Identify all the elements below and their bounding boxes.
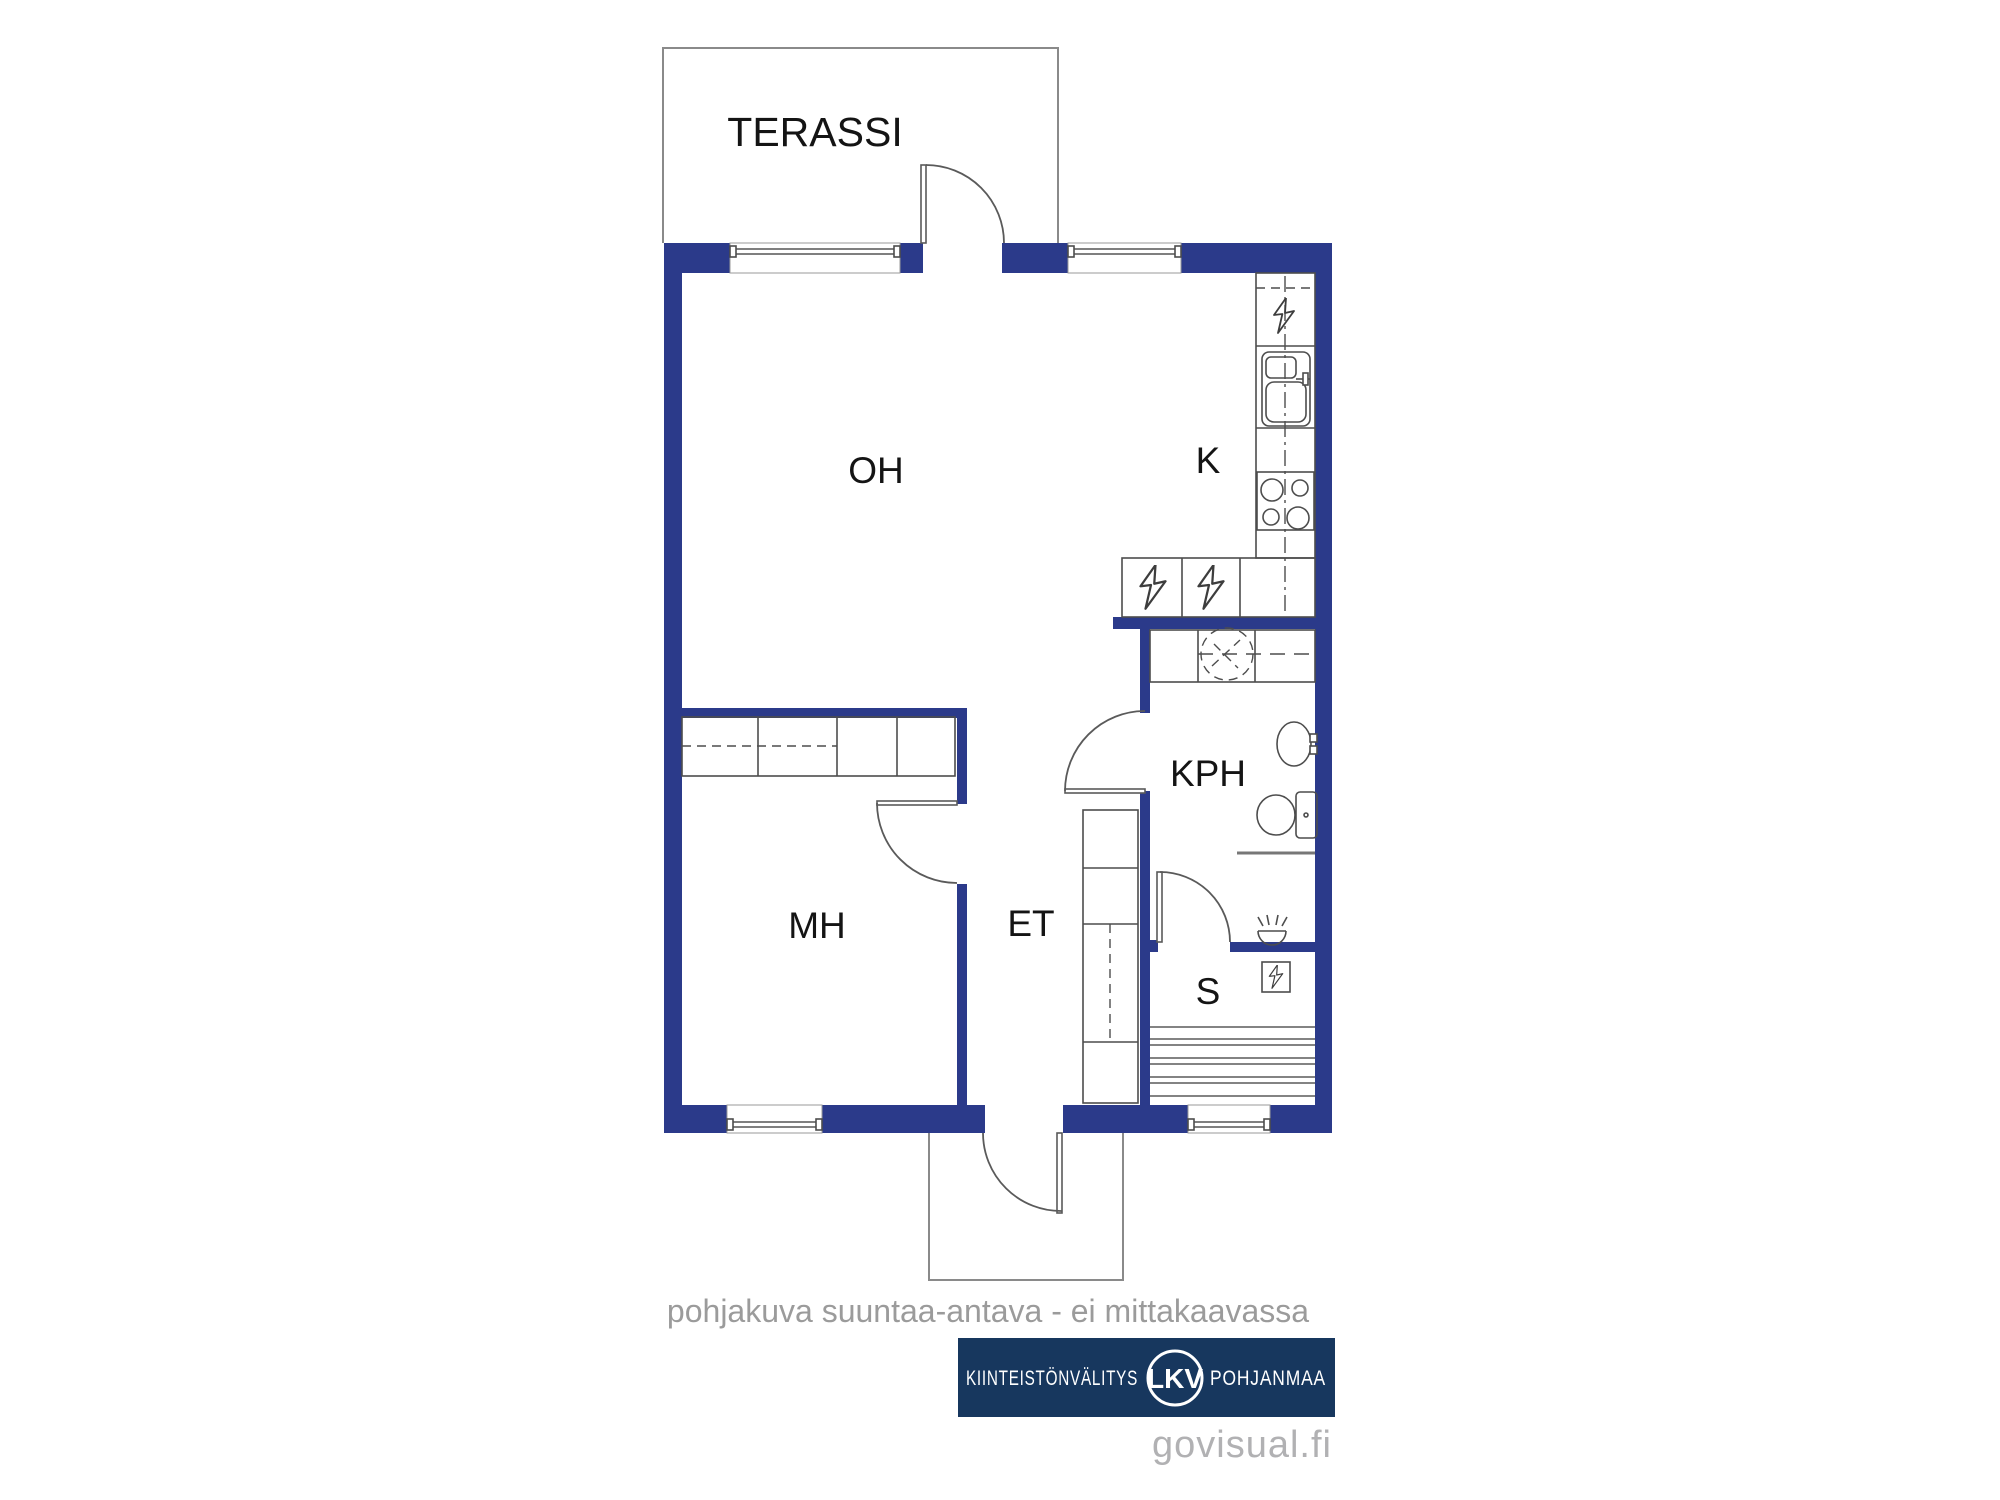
room-label-s: S bbox=[1196, 971, 1221, 1012]
agency-logo: KIINTEISTÖNVÄLITYS LKV POHJANMAA bbox=[958, 1338, 1335, 1417]
room-label-et: ET bbox=[1007, 903, 1054, 944]
toilet-icon bbox=[1257, 792, 1317, 838]
interior-walls bbox=[682, 617, 1315, 1105]
windows bbox=[727, 243, 1270, 1133]
sink-icon bbox=[1262, 352, 1310, 426]
sauna-heater-icon bbox=[1262, 962, 1290, 992]
sauna-fixtures bbox=[1150, 962, 1315, 1096]
shower-icon bbox=[1258, 915, 1287, 945]
kitchen-cabinets bbox=[1122, 558, 1315, 617]
lightning-icon bbox=[1141, 565, 1166, 609]
disclaimer-caption: pohjakuva suuntaa-antava - ei mittakaava… bbox=[667, 1293, 1309, 1329]
room-labels: OH K MH ET KPH S bbox=[788, 440, 1246, 1012]
room-label-kph: KPH bbox=[1170, 753, 1246, 794]
logo-badge: LKV bbox=[1147, 1363, 1203, 1394]
floorplan-page: TERASSI bbox=[0, 0, 2000, 1500]
room-label-mh: MH bbox=[788, 905, 846, 946]
exterior-walls bbox=[664, 243, 1332, 1133]
et-closet bbox=[1083, 810, 1138, 1103]
window-icon bbox=[1068, 243, 1181, 273]
lightning-icon bbox=[1274, 298, 1294, 333]
room-label-oh: OH bbox=[848, 450, 904, 491]
window-icon bbox=[730, 243, 900, 273]
washing-machine-icon bbox=[1150, 628, 1315, 682]
door-arc-icon bbox=[1065, 711, 1145, 793]
mh-closet bbox=[682, 717, 955, 776]
floorplan-canvas: TERASSI bbox=[0, 0, 2000, 1500]
door-arc-icon bbox=[1157, 872, 1230, 942]
door-arc-icon bbox=[921, 165, 1004, 243]
washbasin-icon bbox=[1277, 722, 1317, 766]
logo-text-left: KIINTEISTÖNVÄLITYS bbox=[966, 1367, 1138, 1390]
watermark-text: govisual.fi bbox=[1152, 1424, 1332, 1466]
lightning-icon bbox=[1269, 965, 1282, 988]
lightning-icon bbox=[1199, 565, 1224, 609]
doors bbox=[877, 165, 1230, 1213]
logo-text-right: POHJANMAA bbox=[1210, 1367, 1326, 1390]
sauna-bench-icon bbox=[1150, 1027, 1315, 1096]
room-label-terassi: TERASSI bbox=[727, 109, 902, 155]
room-label-k: K bbox=[1196, 440, 1221, 481]
entrance-stoop bbox=[929, 1133, 1123, 1280]
door-arc-icon bbox=[877, 801, 957, 883]
window-icon bbox=[727, 1105, 822, 1133]
window-icon bbox=[1188, 1105, 1270, 1133]
door-arc-icon bbox=[983, 1133, 1062, 1213]
